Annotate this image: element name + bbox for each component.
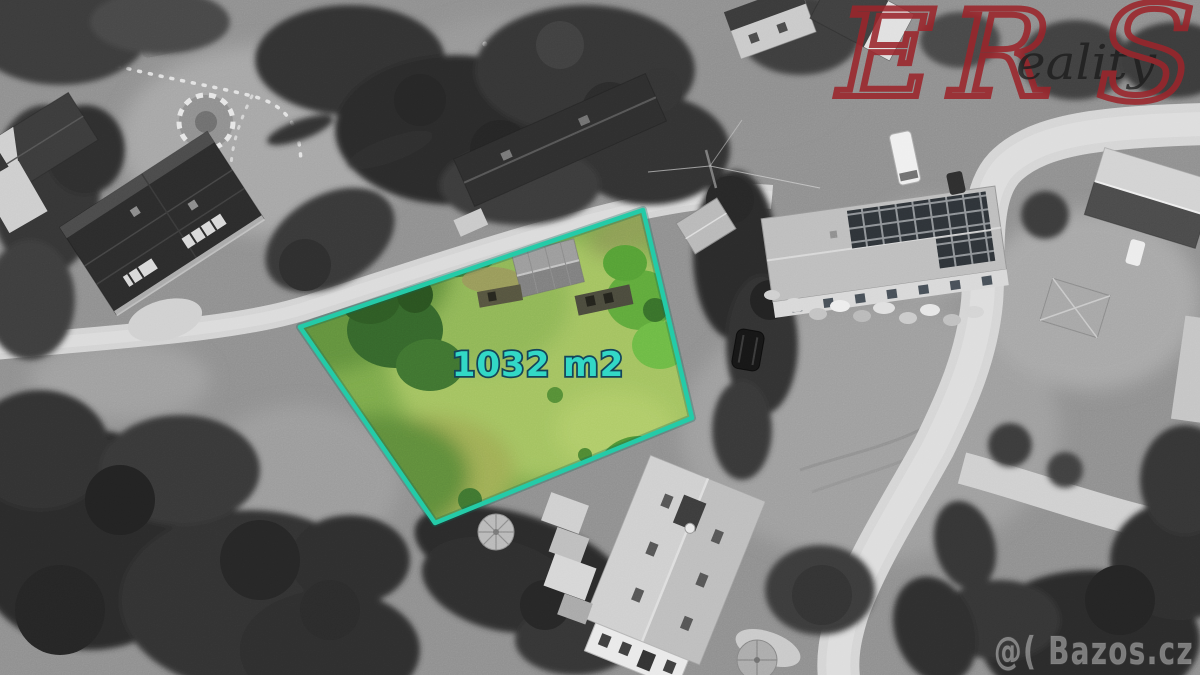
ers-reality-logo: E R eality S [836, 0, 1196, 132]
logo-letter-s: S [1096, 0, 1196, 132]
parcel-area-label: 1032 m2 [452, 345, 625, 385]
listing-aerial-photo: 1032 m2 E R eality S @( Bazos.cz [0, 0, 1200, 675]
aerial-photo-canvas: 1032 m2 E R eality S @( Bazos.cz [0, 0, 1200, 675]
bazos-watermark: @( Bazos.cz [994, 629, 1194, 673]
logo-letter-e: E [836, 0, 936, 125]
